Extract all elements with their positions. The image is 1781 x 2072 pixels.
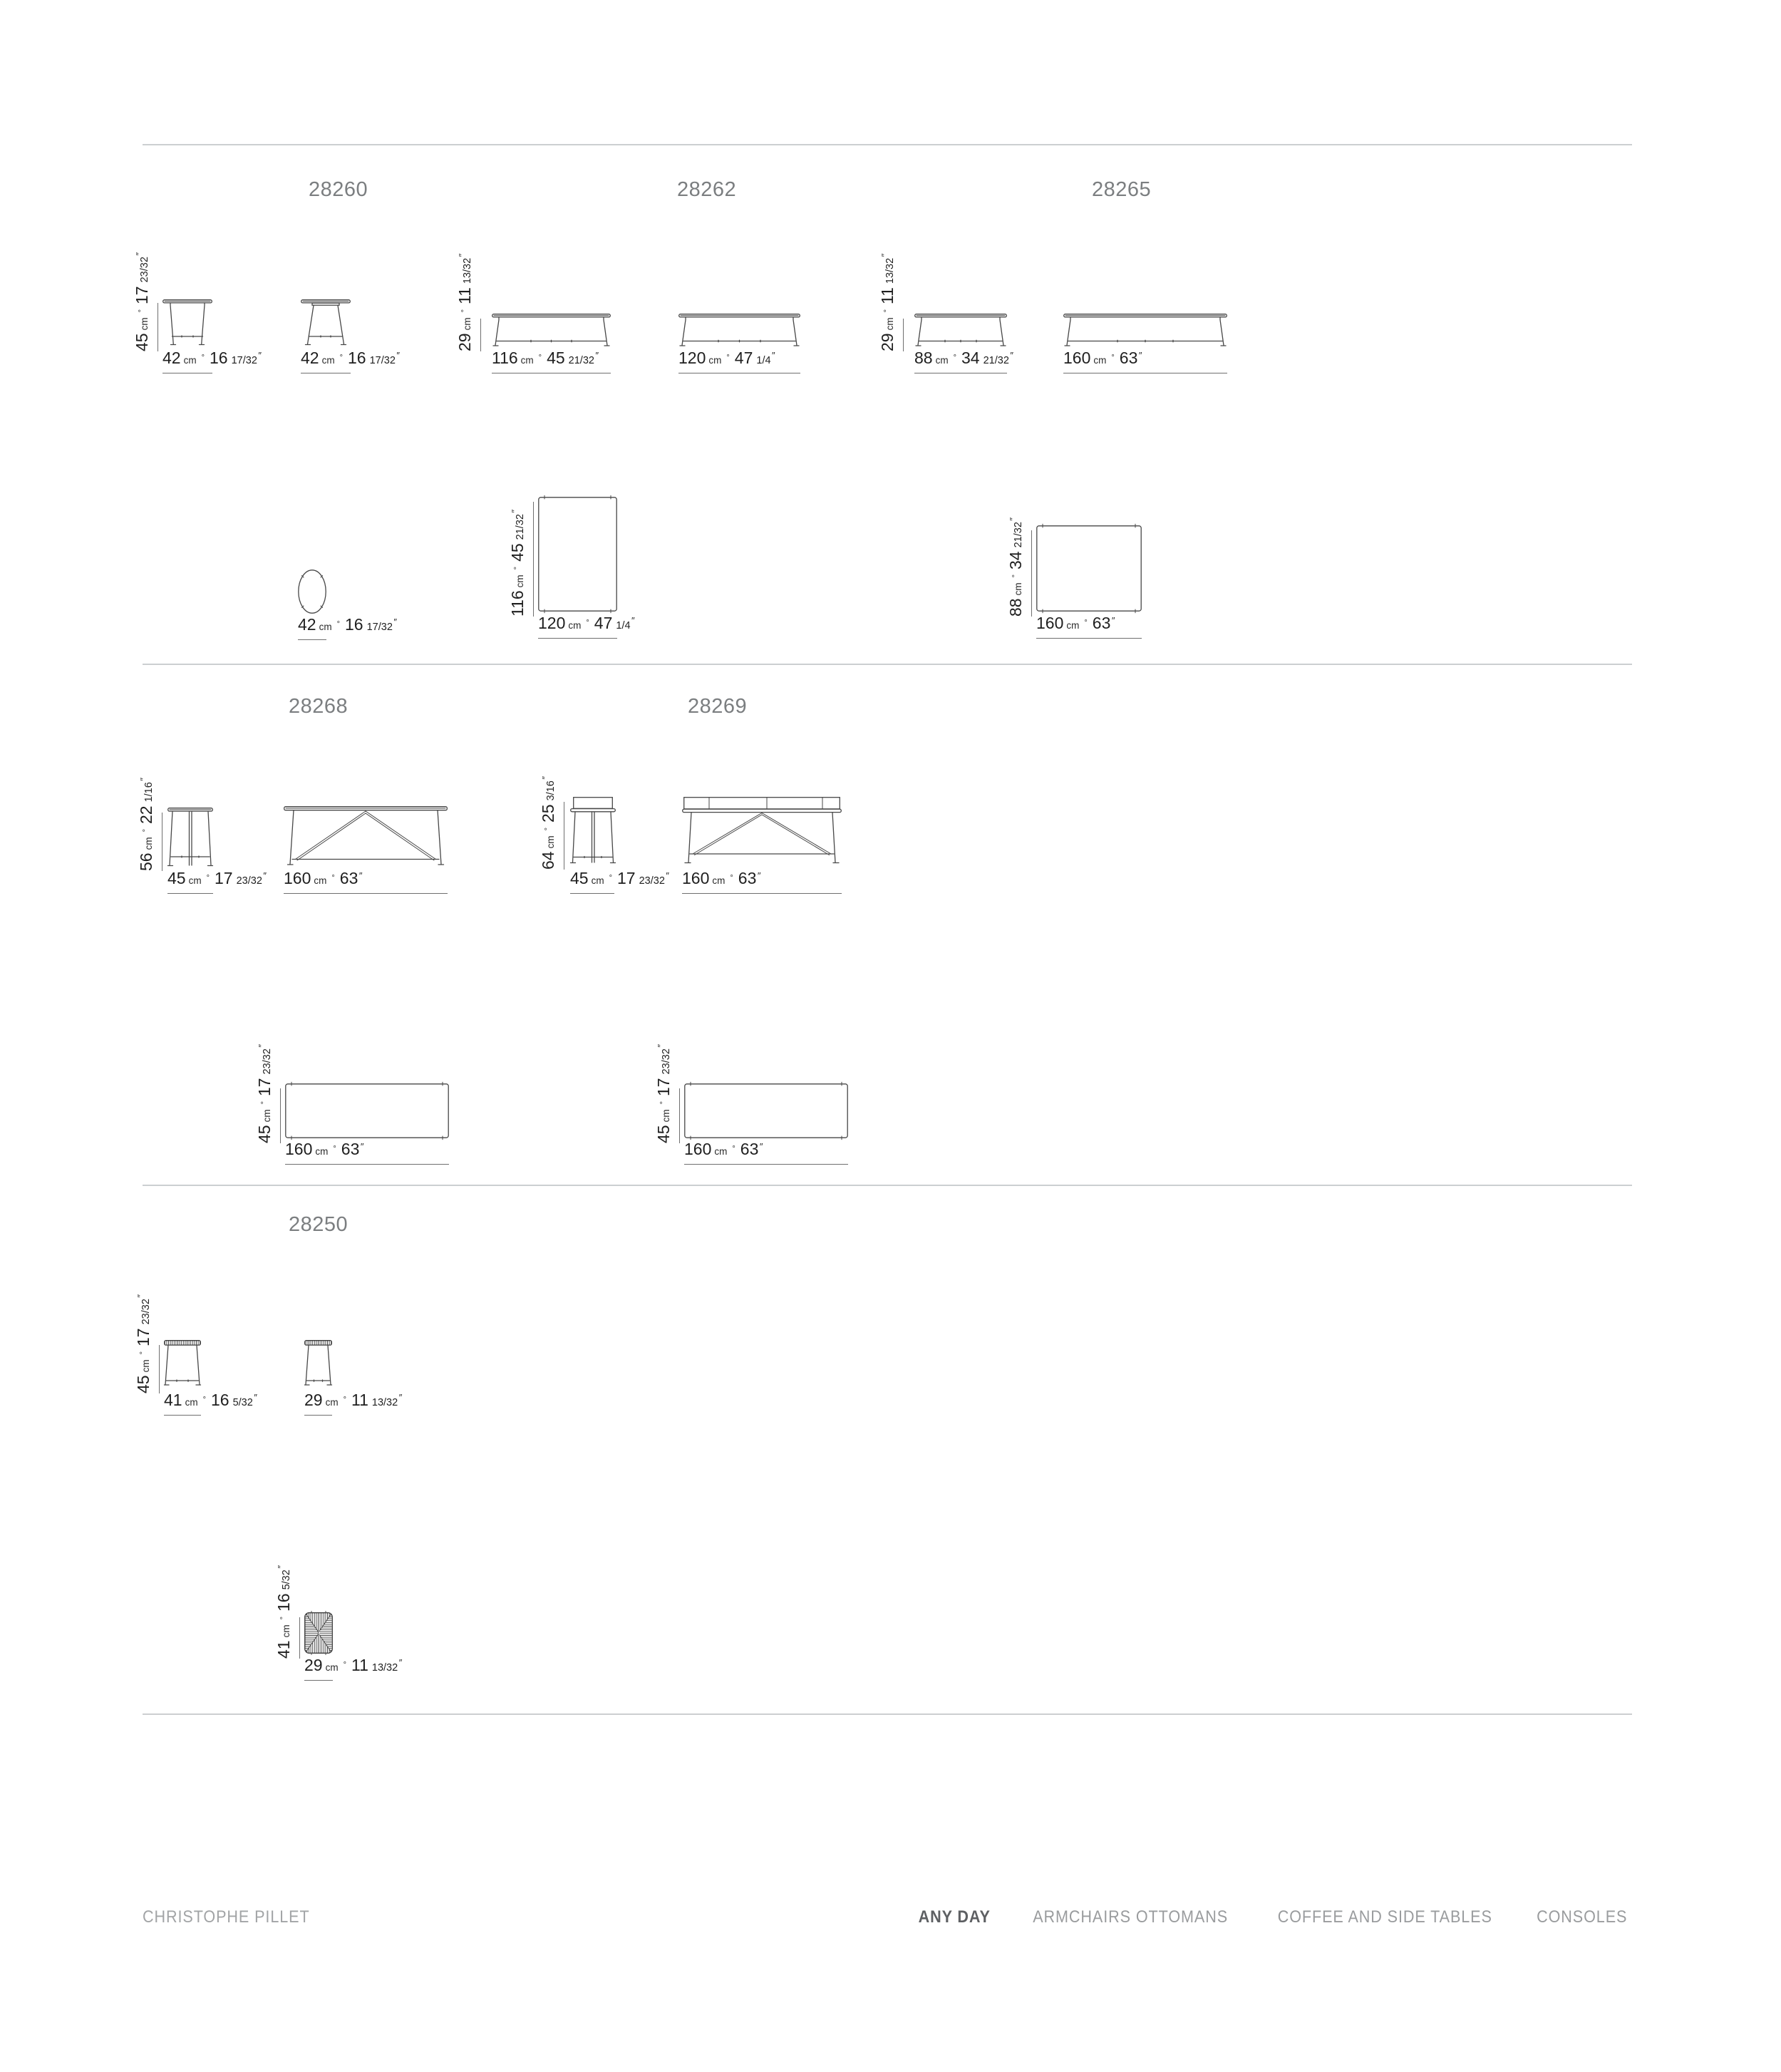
separator-icon: ° [539, 354, 542, 362]
dim-28260-height: 45cm°1723/32″ [135, 303, 158, 351]
cm-unit: cm [315, 1146, 328, 1157]
inch-value: 63 [340, 869, 358, 887]
cm-value: 42 [162, 349, 181, 367]
separator-icon: ° [730, 874, 733, 882]
inch-fraction: 1/4 [616, 620, 630, 632]
separator-icon: ° [260, 1101, 269, 1104]
inch-mark: ″ [254, 1392, 257, 1403]
separator-icon: ° [337, 620, 340, 629]
dim-28260-side-width: 42cm°1617/32″ [301, 351, 351, 373]
inch-mark: ″ [510, 510, 520, 513]
inch-value: 16 [348, 349, 366, 367]
drawing-28268-side-elevation [167, 808, 213, 866]
cm-value: 160 [684, 1140, 711, 1158]
inch-mark: ″ [257, 1044, 267, 1048]
cm-value: 160 [682, 869, 709, 887]
inch-fraction: 21/32 [515, 514, 526, 540]
cm-unit: cm [185, 1397, 198, 1408]
inch-value: 25 [539, 804, 557, 823]
inch-mark: ″ [393, 617, 397, 627]
inch-value: 17 [133, 286, 151, 304]
inch-value: 16 [345, 615, 363, 634]
cm-unit: cm [1066, 620, 1079, 631]
drawing-28262-plan [538, 497, 617, 612]
cm-value: 116 [492, 349, 518, 367]
separator-icon: ° [1011, 574, 1020, 577]
dim-28250-plan-width: 29cm°1113/32″ [304, 1658, 333, 1681]
inch-mark: ″ [758, 870, 761, 881]
inch-fraction: 5/32 [281, 1570, 292, 1589]
drawing-28268-plan [285, 1083, 449, 1138]
cm-value: 42 [298, 615, 316, 634]
separator-icon: ° [883, 309, 892, 312]
cm-value: 41 [164, 1391, 182, 1409]
cm-value: 45 [133, 333, 151, 351]
inch-mark: ″ [1112, 615, 1115, 626]
product-code-28269: 28269 [688, 695, 747, 718]
cm-unit: cm [262, 1109, 272, 1122]
inch-fraction: 1/4 [756, 355, 770, 366]
product-code-28265: 28265 [1092, 178, 1151, 202]
drawing-28265-elevation-88 [914, 314, 1007, 346]
dim-28269-height: 64cm°253/16″ [541, 802, 564, 870]
inch-value: 16 [210, 349, 228, 367]
inch-value: 47 [594, 614, 613, 632]
cm-value: 45 [255, 1125, 274, 1143]
cm-unit: cm [143, 837, 154, 850]
separator-icon: ° [513, 567, 522, 569]
product-code-28250: 28250 [289, 1213, 348, 1237]
inch-fraction: 23/32 [661, 1048, 672, 1074]
separator-icon: ° [331, 874, 334, 882]
separator-icon: ° [138, 309, 146, 312]
inch-value: 11 [455, 287, 474, 304]
drawing-28260-front-elevation [162, 299, 212, 346]
footer-category-consoles: CONSOLES [1537, 1907, 1627, 1927]
cm-unit: cm [545, 835, 556, 848]
inch-fraction: 3/16 [545, 780, 557, 800]
cm-unit: cm [462, 317, 473, 330]
dim-28262-plan-width: 120cm°471/4″ [538, 616, 617, 639]
inch-value: 17 [134, 1328, 153, 1346]
inch-mark: ″ [263, 870, 267, 881]
inch-mark: ″ [666, 870, 669, 881]
drawing-28269-front-elevation [682, 797, 842, 865]
inch-value: 11 [351, 1391, 368, 1409]
inch-fraction: 21/32 [569, 355, 594, 366]
dim-28268-side-width: 45cm°1723/32″ [167, 871, 213, 894]
inch-mark: ″ [258, 350, 262, 361]
dim-28269-front-width: 160cm°63″ [682, 871, 842, 894]
cm-value: 42 [301, 349, 319, 367]
cm-value: 160 [1063, 349, 1090, 367]
cm-value: 160 [284, 869, 311, 887]
inch-fraction: 1/16 [143, 782, 155, 802]
inch-mark: ″ [1139, 350, 1142, 361]
cm-unit: cm [568, 620, 581, 631]
separator-icon: ° [609, 874, 612, 882]
inch-fraction: 23/32 [639, 875, 665, 887]
cm-value: 45 [654, 1125, 673, 1143]
separator-icon: ° [732, 1145, 735, 1153]
cm-unit: cm [322, 355, 335, 366]
inch-mark: ″ [656, 1044, 666, 1048]
inch-value: 34 [1006, 551, 1025, 569]
inch-value: 63 [738, 869, 757, 887]
cm-unit: cm [314, 875, 326, 886]
inch-mark: ″ [359, 870, 363, 881]
inch-mark: ″ [879, 254, 890, 257]
cm-value: 120 [678, 349, 706, 367]
cm-unit: cm [326, 1662, 339, 1673]
inch-mark: ″ [1008, 517, 1018, 521]
dim-28269-plan-width: 160cm°63″ [684, 1142, 848, 1165]
product-code-28268: 28268 [289, 695, 348, 718]
inch-mark: ″ [595, 350, 599, 361]
cm-unit: cm [714, 1146, 727, 1157]
dim-28250-front-width: 41cm°165/32″ [164, 1393, 201, 1416]
separator-icon: ° [202, 354, 205, 362]
cm-unit: cm [319, 622, 332, 632]
cm-value: 120 [538, 614, 565, 632]
drawing-28269-plan [684, 1083, 848, 1138]
dim-28265-height: 29cm°1113/32″ [880, 319, 904, 351]
inch-value: 16 [211, 1391, 229, 1409]
dim-28262-width-116: 116cm°4521/32″ [492, 351, 611, 373]
dim-28262-height: 29cm°1113/32″ [458, 319, 481, 351]
cm-value: 64 [539, 851, 557, 870]
inch-value: 11 [878, 287, 897, 304]
cm-value: 116 [508, 590, 527, 617]
section-divider [143, 1713, 1632, 1715]
cm-value: 160 [1036, 614, 1063, 632]
inch-fraction: 17/32 [367, 622, 393, 633]
dim-28265-width-160: 160cm°63″ [1063, 351, 1227, 373]
inch-mark: ″ [134, 252, 145, 256]
inch-value: 34 [961, 349, 980, 367]
footer-category-armchairs-ottomans: ARMCHAIRS OTTOMANS [1033, 1907, 1228, 1927]
separator-icon: ° [1111, 354, 1114, 362]
cm-unit: cm [884, 317, 895, 330]
cm-value: 88 [914, 349, 933, 367]
inch-fraction: 21/32 [1013, 522, 1024, 547]
dim-28268-plan-width: 160cm°63″ [285, 1142, 449, 1165]
drawing-28250-side-elevation [304, 1340, 332, 1388]
dim-28250-height: 45cm°1723/32″ [136, 1345, 160, 1393]
inch-value: 47 [735, 349, 753, 367]
inch-mark: ″ [457, 254, 468, 257]
dim-28265-plan-width: 160cm°63″ [1036, 616, 1142, 639]
section-divider [143, 144, 1632, 145]
separator-icon: ° [344, 1661, 346, 1669]
section-divider [143, 664, 1632, 665]
dim-28268-height: 56cm°221/16″ [139, 813, 162, 871]
inch-fraction: 23/32 [237, 875, 262, 887]
inch-fraction: 13/32 [462, 258, 473, 284]
dim-28260-plan-diameter: 42cm°1617/32″ [298, 617, 326, 640]
drawing-28260-side-elevation [301, 299, 351, 346]
inch-fraction: 21/32 [984, 355, 1009, 366]
inch-mark: ″ [135, 1294, 146, 1298]
separator-icon: ° [954, 354, 956, 362]
separator-icon: ° [659, 1101, 668, 1104]
dim-28250-plan-depth: 41cm°165/32″ [277, 1617, 300, 1659]
dim-28262-width-120: 120cm°471/4″ [678, 351, 800, 373]
cm-unit: cm [189, 875, 202, 886]
separator-icon: ° [544, 828, 552, 830]
inch-mark: ″ [540, 776, 551, 780]
footer-designer: CHRISTOPHE PILLET [143, 1907, 310, 1927]
cm-unit: cm [708, 355, 721, 366]
cm-unit: cm [712, 875, 725, 886]
inch-fraction: 13/32 [372, 1662, 398, 1674]
drawing-28269-side-elevation [570, 797, 616, 865]
drawing-28262-elevation-116 [492, 314, 611, 346]
cm-unit: cm [661, 1109, 671, 1122]
cm-value: 56 [137, 852, 155, 871]
cm-value: 29 [878, 333, 897, 351]
inch-fraction: 23/32 [262, 1048, 273, 1074]
cm-value: 45 [134, 1375, 153, 1393]
inch-mark: ″ [631, 615, 635, 626]
cm-unit: cm [326, 1397, 339, 1408]
separator-icon: ° [203, 1396, 206, 1404]
dim-28262-plan-depth: 116cm°4521/32″ [510, 502, 534, 617]
dim-28250-side-width: 29cm°1113/32″ [304, 1393, 332, 1416]
inch-mark: ″ [399, 1657, 403, 1668]
cm-unit: cm [1013, 582, 1023, 595]
inch-fraction: 17/32 [232, 355, 257, 366]
drawing-28250-plan [304, 1612, 333, 1654]
inch-fraction: 13/32 [884, 258, 896, 284]
footer-nav: ANY DAY ARMCHAIRS OTTOMANS COFFEE AND SI… [914, 1907, 1632, 1927]
dim-28268-front-width: 160cm°63″ [284, 871, 448, 894]
dim-28268-plan-depth: 45cm°1723/32″ [257, 1088, 281, 1143]
separator-icon: ° [460, 309, 469, 312]
dim-28260-front-width: 42cm°1617/32″ [162, 351, 212, 373]
inch-fraction: 23/32 [140, 1299, 152, 1324]
drawing-28250-front-elevation [164, 1340, 201, 1388]
cm-value: 41 [274, 1640, 293, 1659]
inch-value: 17 [654, 1078, 673, 1096]
separator-icon: ° [139, 1351, 148, 1354]
inch-mark: ″ [396, 350, 400, 361]
separator-icon: ° [586, 619, 589, 627]
inch-mark: ″ [276, 1565, 286, 1569]
drawing-28262-elevation-120 [678, 314, 800, 346]
inch-value: 45 [508, 543, 527, 562]
cm-unit: cm [592, 875, 604, 886]
inch-mark: ″ [361, 1141, 364, 1152]
cm-unit: cm [1093, 355, 1106, 366]
cm-value: 29 [304, 1391, 323, 1409]
catalog-sheet: 28260 28262 28265 28268 28269 28250 [0, 0, 1781, 2072]
inch-fraction: 23/32 [139, 257, 150, 282]
inch-fraction: 17/32 [370, 355, 396, 366]
cm-value: 160 [285, 1140, 312, 1158]
inch-value: 17 [617, 869, 636, 887]
inch-fraction: 13/32 [372, 1397, 398, 1408]
inch-fraction: 5/32 [233, 1397, 253, 1408]
drawing-28260-plan-round [298, 569, 326, 614]
cm-unit: cm [515, 574, 525, 587]
separator-icon: ° [1084, 619, 1087, 627]
separator-icon: ° [207, 874, 210, 882]
inch-value: 63 [341, 1140, 360, 1158]
inch-value: 11 [351, 1656, 368, 1674]
separator-icon: ° [344, 1396, 346, 1404]
product-code-28260: 28260 [309, 178, 368, 202]
cm-unit: cm [281, 1624, 291, 1637]
dim-28269-plan-depth: 45cm°1723/32″ [656, 1088, 680, 1143]
cm-value: 29 [455, 333, 474, 351]
inch-value: 17 [215, 869, 233, 887]
dim-28265-plan-depth: 88cm°3421/32″ [1008, 530, 1032, 617]
cm-unit: cm [140, 1359, 151, 1372]
drawing-28268-front-elevation [284, 806, 448, 866]
cm-unit: cm [139, 317, 150, 330]
inch-value: 63 [1093, 614, 1111, 632]
cm-unit: cm [521, 355, 534, 366]
separator-icon: ° [333, 1145, 336, 1153]
inch-value: 63 [740, 1140, 759, 1158]
separator-icon: ° [279, 1617, 288, 1619]
dim-28269-side-width: 45cm°1723/32″ [570, 871, 614, 894]
separator-icon: ° [340, 354, 343, 362]
inch-mark: ″ [772, 350, 775, 361]
inch-mark: ″ [1010, 350, 1013, 361]
section-divider [143, 1185, 1632, 1186]
separator-icon: ° [726, 354, 729, 362]
footer-collection: ANY DAY [919, 1907, 991, 1927]
drawing-28265-plan [1036, 525, 1142, 612]
cm-value: 45 [570, 869, 589, 887]
inch-mark: ″ [760, 1141, 763, 1152]
cm-value: 45 [167, 869, 186, 887]
inch-value: 45 [547, 349, 565, 367]
separator-icon: ° [142, 829, 150, 832]
inch-value: 16 [274, 1593, 293, 1612]
inch-mark: ″ [138, 778, 149, 781]
cm-unit: cm [936, 355, 949, 366]
dim-28265-width-88: 88cm°3421/32″ [914, 351, 1007, 373]
inch-value: 63 [1120, 349, 1138, 367]
inch-mark: ″ [399, 1392, 403, 1403]
inch-value: 17 [255, 1078, 274, 1096]
product-code-28262: 28262 [677, 178, 736, 202]
cm-value: 88 [1006, 598, 1025, 617]
cm-value: 29 [304, 1656, 323, 1674]
inch-value: 22 [137, 805, 155, 824]
cm-unit: cm [184, 355, 197, 366]
drawing-28265-elevation-160 [1063, 314, 1227, 346]
footer-category-coffee-side-tables: COFFEE AND SIDE TABLES [1278, 1907, 1492, 1927]
